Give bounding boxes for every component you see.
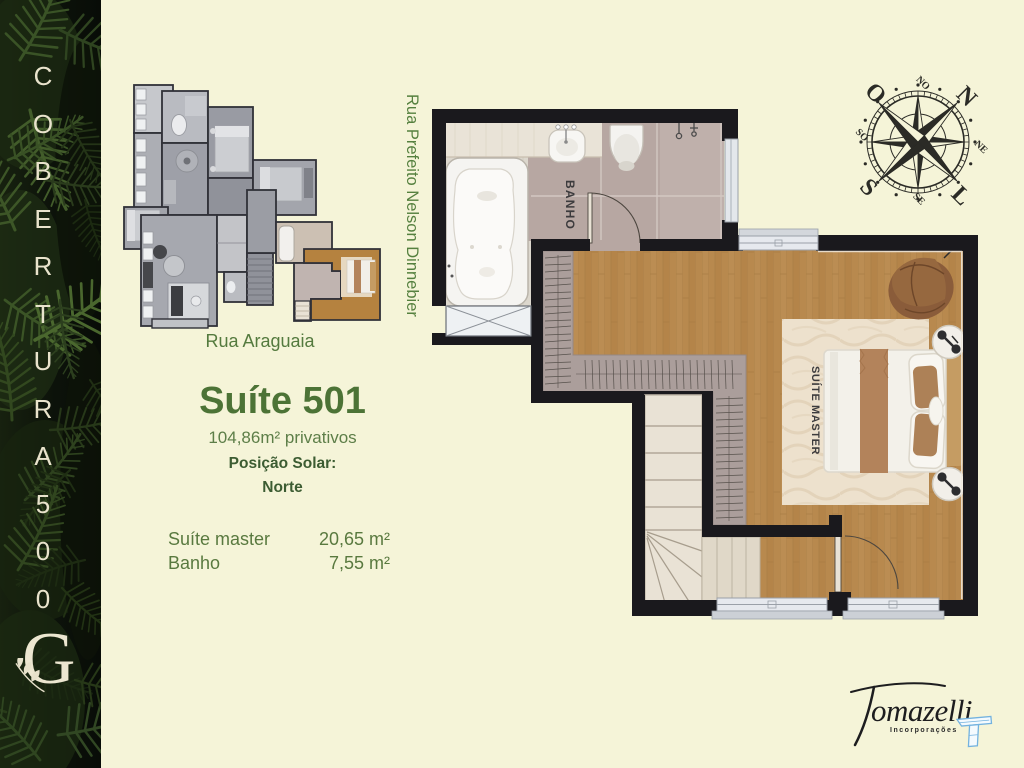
svg-text:Incorporações: Incorporações	[890, 727, 958, 734]
svg-text:SUÍTE MASTER: SUÍTE MASTER	[809, 366, 822, 455]
svg-text:omazelli: omazelli	[871, 693, 972, 728]
svg-text:L: L	[946, 181, 976, 211]
svg-text:SE: SE	[910, 191, 927, 208]
svg-text:O: O	[859, 78, 891, 110]
svg-text:S: S	[854, 174, 882, 202]
svg-text:NO: NO	[913, 74, 932, 93]
svg-text:SO: SO	[853, 127, 870, 144]
svg-text:BANHO: BANHO	[563, 180, 577, 230]
